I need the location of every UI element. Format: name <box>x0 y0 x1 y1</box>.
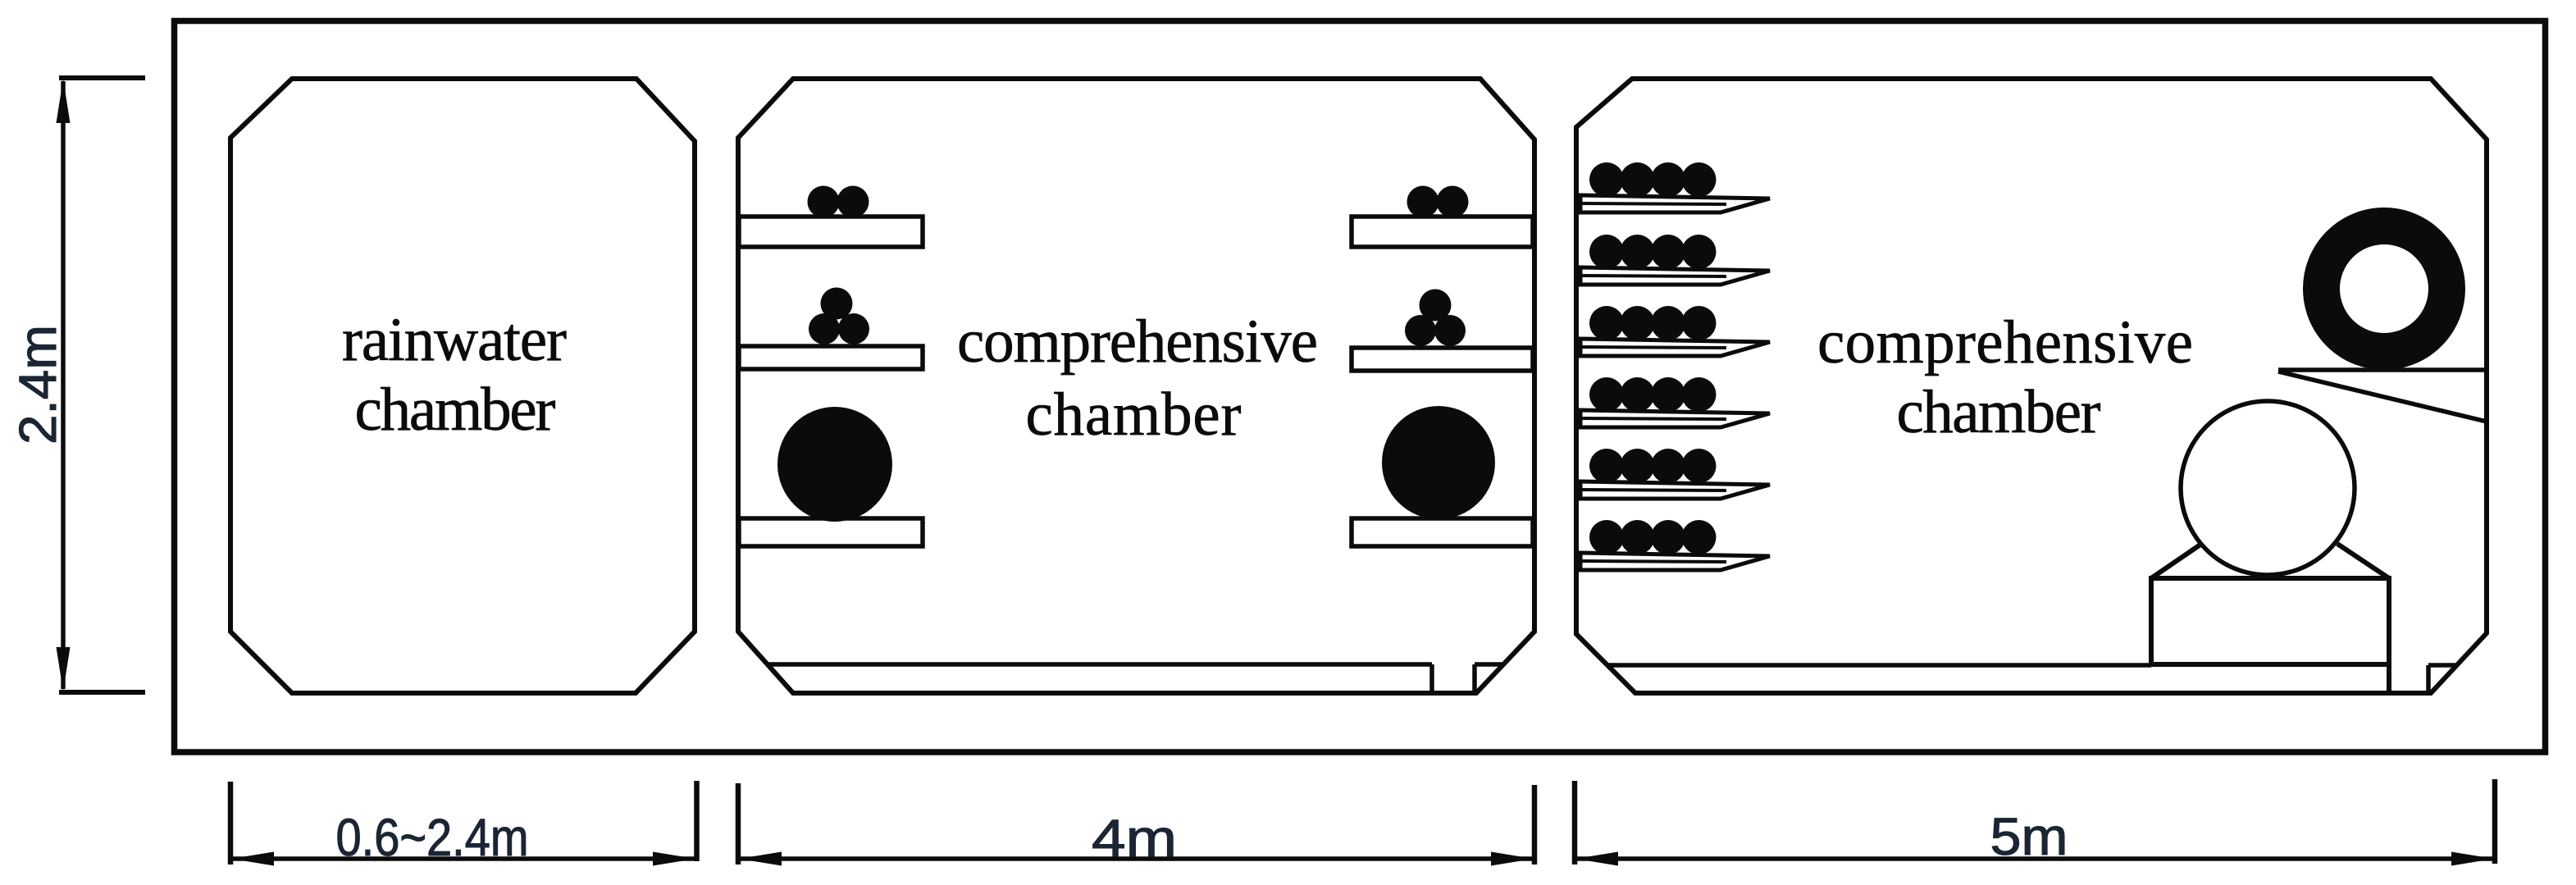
svg-text:chamber: chamber <box>355 376 556 444</box>
svg-text:comprehensive: comprehensive <box>1817 308 2193 376</box>
svg-text:chamber: chamber <box>1026 381 1242 449</box>
svg-text:2.4m: 2.4m <box>8 325 67 445</box>
svg-text:4m: 4m <box>1092 809 1177 868</box>
svg-text:chamber: chamber <box>1897 378 2101 446</box>
svg-text:comprehensive: comprehensive <box>957 308 1318 376</box>
svg-text:0.6~2.4m: 0.6~2.4m <box>336 808 529 867</box>
svg-text:rainwater: rainwater <box>342 306 567 374</box>
svg-text:5m: 5m <box>1990 807 2068 866</box>
